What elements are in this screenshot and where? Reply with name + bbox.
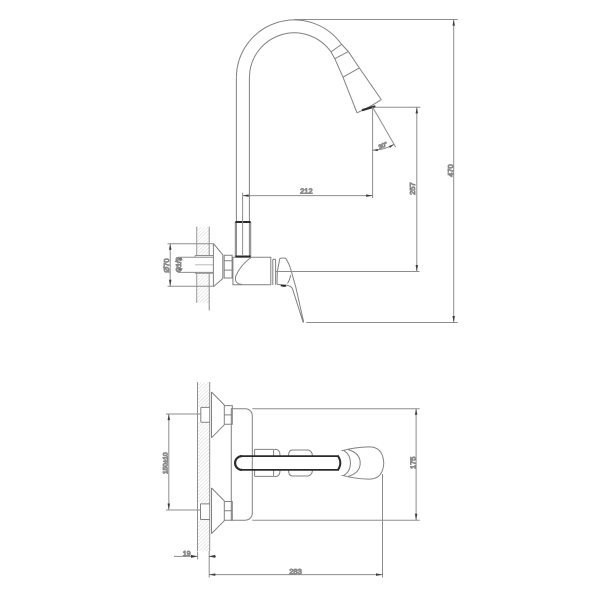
svg-text:175: 175 [408,457,417,470]
svg-text:19: 19 [183,551,191,558]
svg-text:Ø70: Ø70 [162,258,171,272]
svg-text:150±10: 150±10 [163,452,170,474]
svg-text:212: 212 [300,187,313,196]
svg-text:283: 283 [289,567,302,576]
svg-text:30°: 30° [378,142,389,151]
svg-text:257: 257 [408,182,417,195]
svg-text:470: 470 [446,164,455,177]
svg-text:G1/2: G1/2 [176,257,183,272]
